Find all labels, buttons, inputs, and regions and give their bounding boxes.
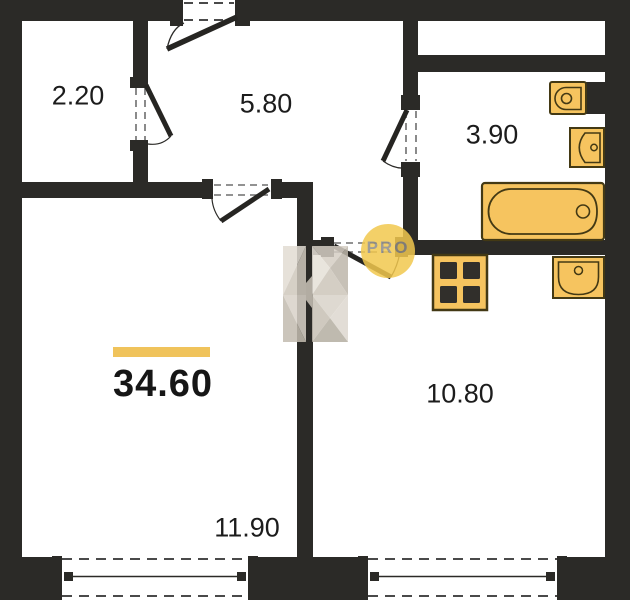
entrance-door-icon xyxy=(167,3,237,49)
bathroom-door-icon xyxy=(383,110,416,168)
floor-plan: PRO 2.20 5.80 3.90 10.80 11.90 34.60 xyxy=(0,0,630,600)
window-icon xyxy=(62,559,248,596)
kitchen-area-label: 10.80 xyxy=(426,381,494,408)
living-room-area-label: 11.90 xyxy=(214,515,280,542)
toilet-icon xyxy=(550,82,586,114)
watermark-letter xyxy=(283,246,348,342)
bathtub-icon xyxy=(482,183,604,240)
closet-door-icon xyxy=(136,85,171,144)
watermark-text: PRO xyxy=(367,238,410,257)
living-room-door-icon xyxy=(212,185,269,221)
total-area-accent-bar xyxy=(113,347,210,357)
total-area-label: 34.60 xyxy=(113,365,213,403)
hallway-area-label: 5.80 xyxy=(240,91,293,118)
washbasin-icon xyxy=(570,128,604,167)
bathroom-area-label: 3.90 xyxy=(466,122,519,149)
window-icon xyxy=(368,559,557,596)
kitchen-sink-icon xyxy=(553,257,604,298)
stove-icon xyxy=(433,255,487,310)
watermark-logo: PRO xyxy=(283,224,415,342)
closet-area-label: 2.20 xyxy=(52,83,105,110)
